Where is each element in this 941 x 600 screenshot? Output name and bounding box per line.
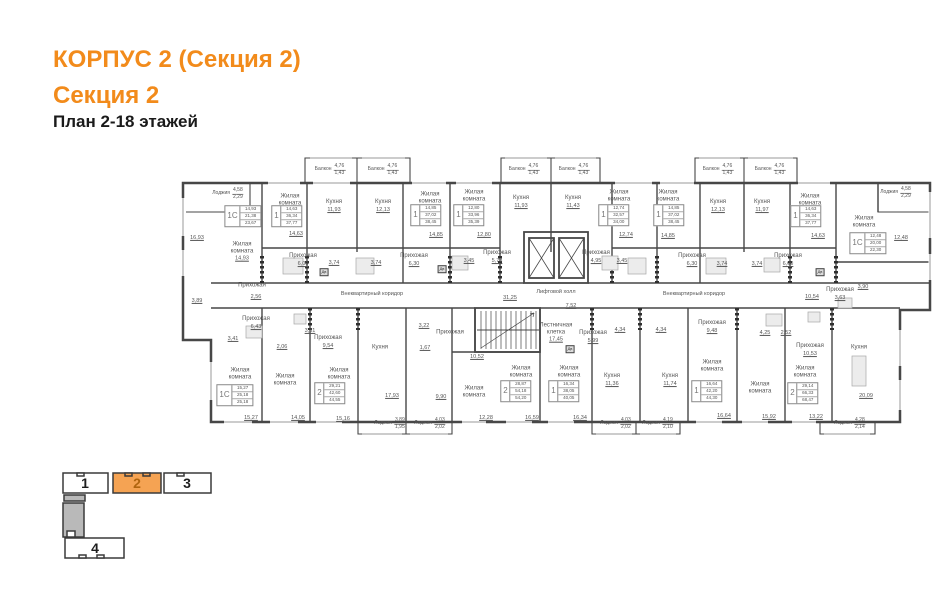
area-value: 20,09: [859, 393, 873, 399]
area-value: 14,63: [289, 231, 303, 237]
room-label: Жилая комната: [501, 365, 541, 378]
minimap-label-1: 1: [81, 475, 89, 491]
room-label: Кухня11,74: [650, 373, 690, 387]
area-value: 15,27: [244, 415, 258, 421]
area-value: 2,56: [251, 294, 262, 300]
area-value: 10,54: [805, 294, 819, 300]
balcony-label: Лоджия3,891,95: [374, 418, 405, 430]
apartment-stamp[interactable]: 1С15,2725,1825,18: [216, 384, 253, 406]
corridor-label: Лифтовой холл: [536, 289, 575, 295]
room-label: Кухня: [839, 345, 879, 352]
room-label: Кухня11,36: [592, 373, 632, 387]
area-value: 2,52: [781, 330, 792, 336]
area-value: 1,67: [420, 345, 431, 351]
area-value: 12,28: [479, 415, 493, 421]
area-value: 14,85: [429, 232, 443, 238]
area-value: 7,52: [566, 303, 577, 309]
balcony-label: Лоджия4,582,29: [212, 188, 243, 200]
balcony-label: Балкон4,761,43: [703, 164, 734, 176]
area-value: 3,74: [752, 261, 763, 267]
room-label: Жилая комната: [265, 373, 305, 386]
apartment-stamp[interactable]: 228,8754,1854,20: [500, 380, 531, 402]
room-label: Прихожая9,48: [692, 320, 732, 334]
stair-treads: [477, 311, 539, 349]
balcony-label: Лоджия4,192,10: [642, 418, 673, 430]
room-label: Жилая комната: [220, 367, 260, 380]
minimap-notch: [67, 531, 75, 537]
apartment-stamp[interactable]: 112,8033,9635,39: [453, 204, 484, 226]
area-value: 10,52: [470, 354, 484, 360]
area-value: 3,41: [228, 336, 239, 342]
area-value: 12,74: [619, 232, 633, 238]
room-label: Прихожая4,95: [576, 250, 616, 264]
room-label: Прихожая: [430, 330, 470, 337]
room-label: Жилая комната: [648, 189, 688, 202]
minimap-notch: [79, 555, 86, 558]
floor-plan-page: КОРПУС 2 (Секция 2) Секция 2 План 2-18 э…: [0, 0, 941, 600]
room-label: Прихожая3,63: [820, 287, 860, 301]
area-value: 2,06: [277, 344, 288, 350]
room-label: Прихожая6,30: [394, 253, 434, 267]
door-icon: Дв: [438, 265, 447, 273]
area-value: 14,85: [661, 233, 675, 239]
corridor-label: Внеквартирный коридор: [341, 291, 403, 297]
apartment-stamp[interactable]: 114,8537,0238,45: [410, 204, 441, 226]
apartment-stamp[interactable]: 114,6336,3437,77: [271, 205, 302, 227]
section-minimap: 1 2 3 4: [55, 466, 225, 566]
room-label: Лестничная клетка17,45: [536, 323, 576, 344]
balcony-label: Лоджия4,582,29: [880, 187, 911, 199]
balcony-label: Балкон4,761,43: [368, 164, 399, 176]
corridor-label: Внеквартирный коридор: [663, 291, 725, 297]
area-value: 4,34: [615, 327, 626, 333]
balcony-label: Балкон4,761,43: [755, 164, 786, 176]
door-icon: Дв: [816, 268, 825, 276]
area-value: 16,64: [717, 413, 731, 419]
balcony-label: Балкон4,761,43: [315, 164, 346, 176]
area-value: 4,25: [760, 330, 771, 336]
area-value: 14,05: [291, 415, 305, 421]
apartment-stamp[interactable]: 112,7432,5734,00: [598, 204, 629, 226]
area-value: 15,92: [762, 414, 776, 420]
room-label: Жилая комната: [454, 189, 494, 202]
room-label: Жилая комната: [454, 385, 494, 398]
minimap-notch: [143, 473, 150, 476]
room-label: Прихожая: [232, 283, 272, 290]
room-label: Жилая комната: [785, 365, 825, 378]
room-label: Кухня: [360, 345, 400, 352]
apartment-stamp[interactable]: 229,2142,6044,55: [314, 382, 345, 404]
room-label: Жилая комната: [410, 191, 450, 204]
area-value: 16,93: [190, 235, 204, 241]
minimap-label-4: 4: [91, 540, 99, 556]
room-label: Жилая комната: [740, 381, 780, 394]
room-label: Прихожая6,30: [672, 253, 712, 267]
door-icon: Дв: [320, 268, 329, 276]
room-label: Кухня12,13: [363, 199, 403, 213]
area-value: 3,45: [464, 258, 475, 264]
room-label: Жилая комната: [549, 365, 589, 378]
area-value: 12,80: [477, 232, 491, 238]
area-value: 13,22: [809, 414, 823, 420]
apartment-stamp[interactable]: 114,6336,3437,77: [790, 205, 821, 227]
area-value: 12,48: [894, 235, 908, 241]
room-label: Кухня11,93: [314, 199, 354, 213]
room-label: Жилая комната: [692, 359, 732, 372]
area-value: 3,90: [858, 284, 869, 290]
area-value: 3,74: [717, 261, 728, 267]
area-value: 16,34: [573, 415, 587, 421]
room-label: Жилая комната14,93: [222, 242, 262, 263]
minimap-connector: [64, 495, 85, 501]
room-label: Жилая комната: [844, 215, 884, 228]
balcony-label: Балкон4,761,43: [559, 164, 590, 176]
area-value: 9,90: [436, 394, 447, 400]
door-icon: Дв: [566, 345, 575, 353]
area-value: 3,22: [419, 323, 430, 329]
area-value: 15,16: [336, 416, 350, 422]
room-label: Прихожая10,53: [790, 343, 830, 357]
apartment-stamp[interactable]: 116,6442,2044,30: [691, 380, 722, 402]
minimap-label-3: 3: [183, 475, 191, 491]
apartment-stamp[interactable]: 1С14,9321,3823,67: [224, 205, 261, 227]
balcony-label: Лоджия4,032,02: [414, 418, 445, 430]
room-label: Прихожая6,00: [283, 253, 323, 267]
room-label: Прихожая5,99: [573, 330, 613, 344]
area-value: 3,74: [329, 260, 340, 266]
room-label: Жилая комната: [599, 189, 639, 202]
apartment-stamp[interactable]: 1С12,4820,0022,30: [849, 232, 886, 254]
room-label: Кухня12,13: [698, 199, 738, 213]
area-value: 16,59: [525, 415, 539, 421]
room-label: Прихожая6,43: [236, 316, 276, 330]
area-value: 3,45: [617, 258, 628, 264]
room-label: Кухня11,97: [742, 199, 782, 213]
apartment-stamp[interactable]: 229,1466,3368,47: [787, 382, 818, 404]
room-label: Кухня11,43: [553, 195, 593, 209]
room-label: Кухня11,93: [501, 195, 541, 209]
balcony-label: Лоджия4,032,02: [600, 418, 631, 430]
room-label: Прихожая5,78: [477, 250, 517, 264]
area-value: 3,74: [371, 260, 382, 266]
balcony-label: Лоджия4,282,14: [834, 418, 865, 430]
area-value: 14,63: [811, 233, 825, 239]
balcony-label: Балкон4,761,43: [509, 164, 540, 176]
room-label: Прихожая6,00: [768, 253, 808, 267]
minimap-notch: [125, 473, 132, 476]
area-value: 17,93: [385, 393, 399, 399]
room-label: Прихожая9,54: [308, 335, 348, 349]
apartment-stamp[interactable]: 114,8537,0238,45: [653, 204, 684, 226]
area-value: 3,89: [192, 298, 203, 304]
apartment-stamp[interactable]: 116,3438,0540,05: [548, 380, 579, 402]
area-value: 31,25: [503, 295, 517, 301]
room-label: Жилая комната: [319, 367, 359, 380]
minimap-label-2: 2: [133, 475, 141, 491]
area-value: 3,81: [305, 328, 316, 334]
area-value: 4,34: [656, 327, 667, 333]
